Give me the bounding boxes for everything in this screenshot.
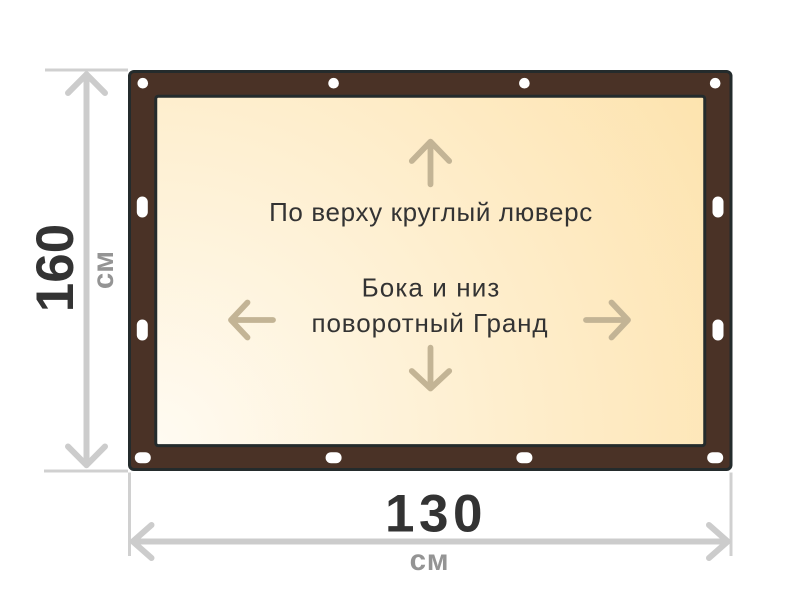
svg-text:см: см	[87, 251, 120, 289]
svg-text:160: 160	[26, 224, 85, 312]
svg-text:см: см	[410, 544, 450, 577]
svg-text:130: 130	[385, 485, 487, 544]
svg-text:По верху круглый люверс: По верху круглый люверс	[269, 197, 593, 227]
svg-text:Бока и низ: Бока и низ	[362, 273, 501, 303]
svg-text:поворотный Гранд: поворотный Гранд	[311, 308, 548, 338]
